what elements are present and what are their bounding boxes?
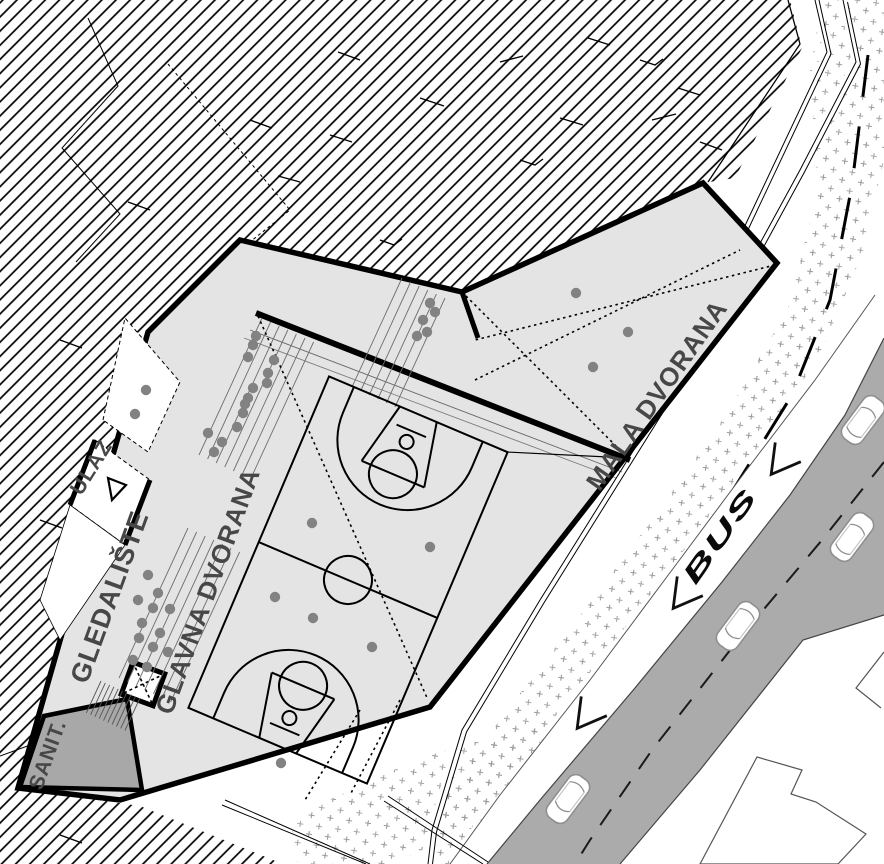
site-plan-drawing: BUS	[0, 0, 884, 864]
plan-canvas: BUS	[0, 0, 884, 864]
